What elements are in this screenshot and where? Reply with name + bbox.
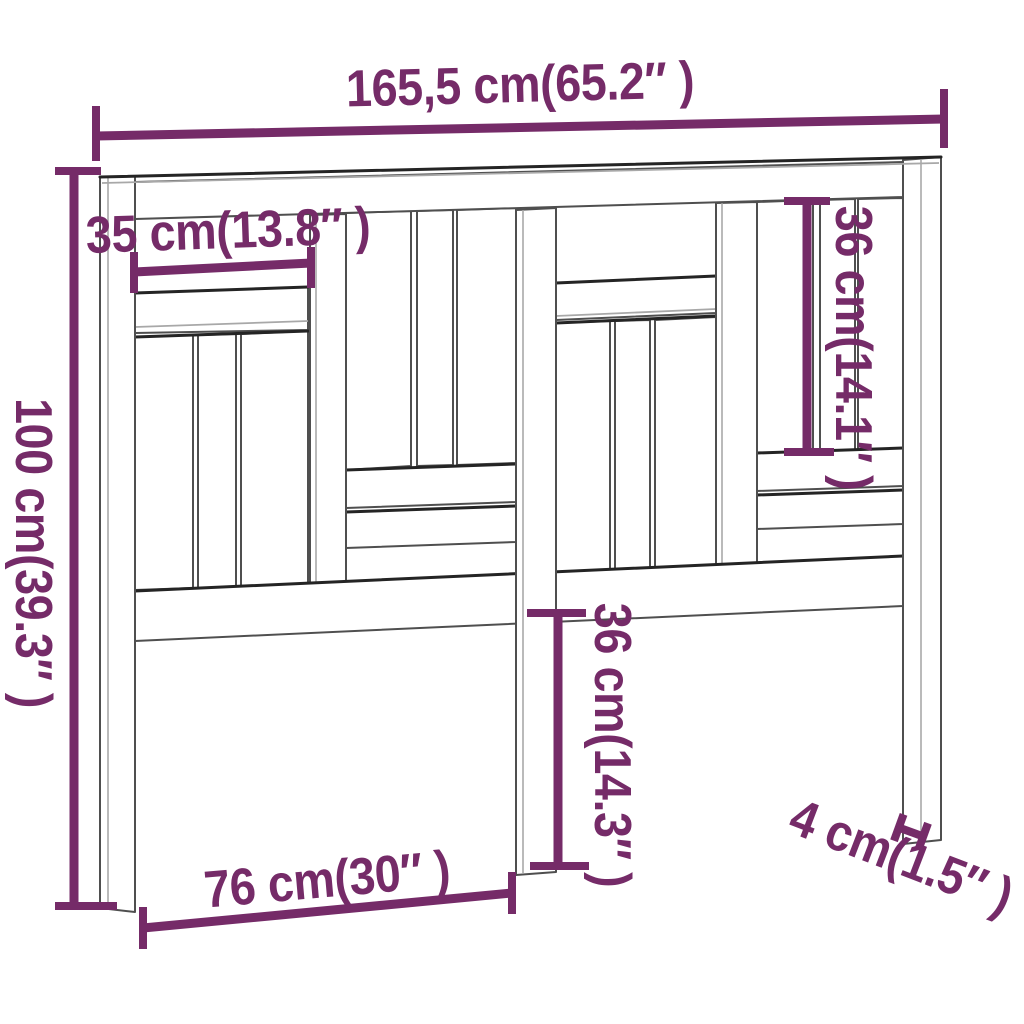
panel-left-vertical-slats bbox=[135, 331, 308, 590]
center-leg bbox=[516, 208, 556, 875]
panel-centerleft-vertical-slats bbox=[346, 208, 516, 470]
right-leg bbox=[903, 157, 941, 844]
panel-left-horizontal-board bbox=[135, 287, 308, 333]
left-intermediate-stile bbox=[310, 214, 346, 584]
panel-centerleft-horizontal-boards bbox=[346, 464, 516, 548]
panel-centerright-vertical-slats bbox=[556, 316, 716, 576]
right-intermediate-stile bbox=[716, 202, 757, 570]
dimension-label-upper-left-opening: 35 cm(13.8″ ) bbox=[85, 200, 371, 262]
dimension-label-total-height: 100 cm(39.3″ ) bbox=[7, 398, 59, 708]
headboard-dimension-diagram: 165,5 cm(65.2″ ) 100 cm(39.3″ ) 35 cm(13… bbox=[0, 0, 1024, 1024]
left-leg bbox=[100, 176, 135, 912]
dimension-label-total-width: 165,5 cm(65.2″ ) bbox=[345, 54, 694, 115]
dimension-label-center-leg: 36 cm(14.3″ ) bbox=[586, 603, 638, 888]
dimension-label-right-slat-section: 36 cm(14.1″ ) bbox=[827, 206, 879, 491]
panel-centerright-horizontal-board bbox=[556, 276, 716, 320]
